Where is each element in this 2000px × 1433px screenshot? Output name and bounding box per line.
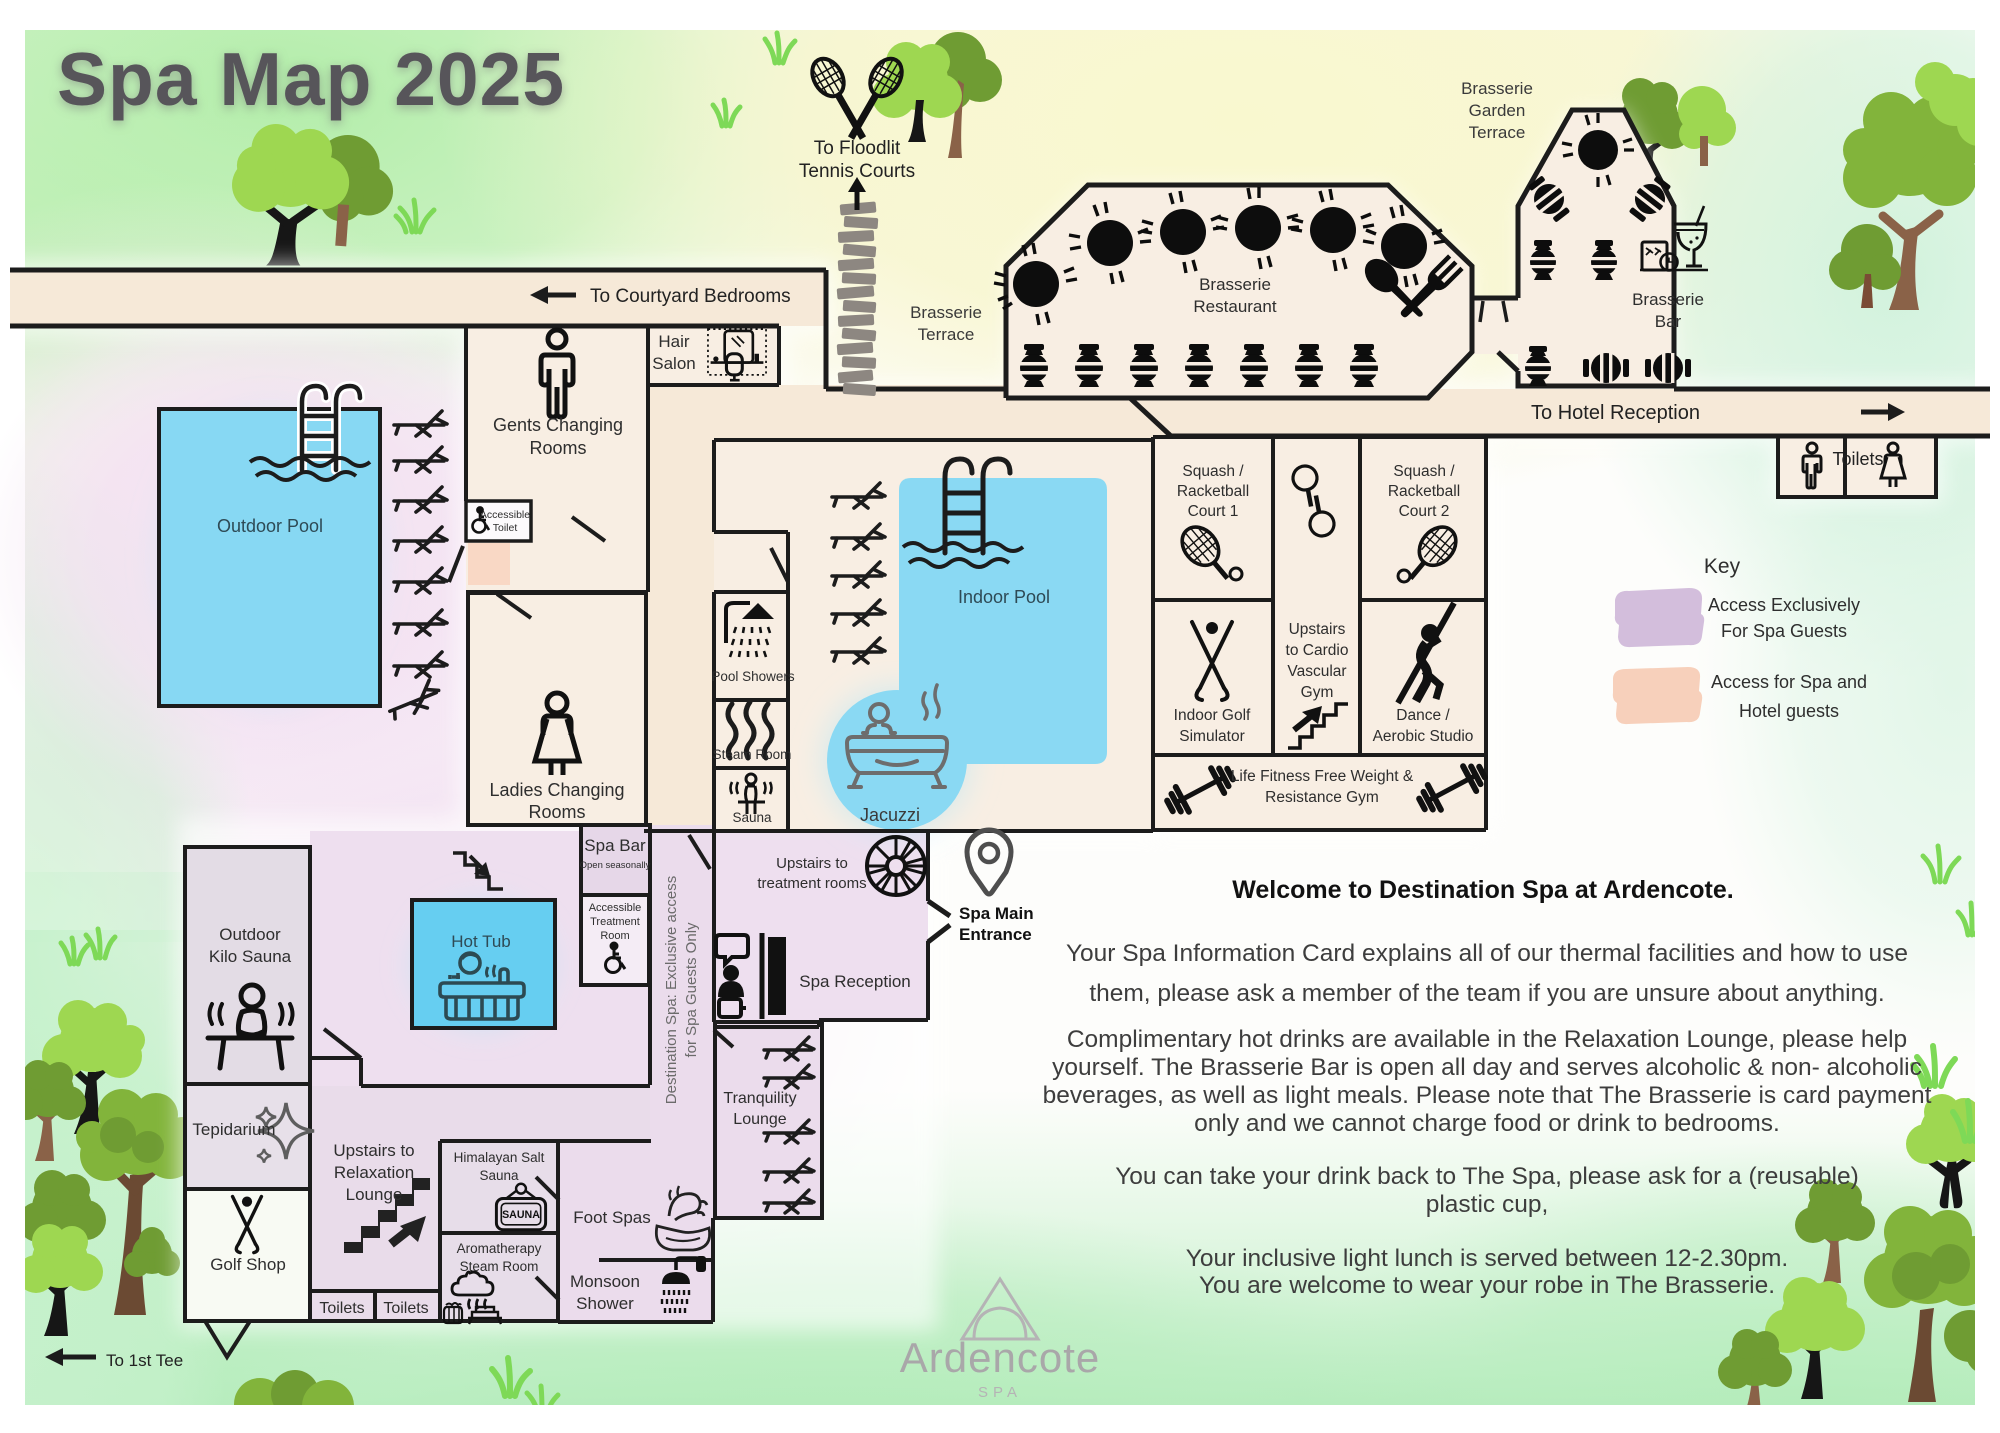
svg-text:Squash /: Squash / bbox=[1393, 463, 1455, 480]
svg-text:only and we cannot charge food: only and we cannot charge food or drink … bbox=[1194, 1110, 1780, 1137]
svg-text:Entrance: Entrance bbox=[959, 925, 1032, 944]
svg-text:Tepidarium: Tepidarium bbox=[192, 1120, 275, 1139]
svg-text:Steam Room: Steam Room bbox=[460, 1259, 539, 1274]
svg-text:beverages, as well as light me: beverages, as well as light meals. Pleas… bbox=[1043, 1082, 1932, 1109]
svg-text:Lounge: Lounge bbox=[733, 1111, 786, 1128]
svg-text:Vascular: Vascular bbox=[1287, 663, 1346, 680]
svg-text:Brasserie: Brasserie bbox=[910, 303, 982, 322]
svg-text:Jacuzzi: Jacuzzi bbox=[860, 805, 920, 825]
svg-text:plastic cup,: plastic cup, bbox=[1426, 1191, 1549, 1218]
svg-text:Your inclusive light lunch is: Your inclusive light lunch is served bet… bbox=[1186, 1245, 1788, 1272]
svg-text:for Spa Guests Only: for Spa Guests Only bbox=[683, 922, 700, 1058]
svg-text:Simulator: Simulator bbox=[1179, 728, 1244, 745]
svg-text:Toilets: Toilets bbox=[383, 1300, 428, 1317]
svg-text:To Hotel Reception: To Hotel Reception bbox=[1531, 402, 1700, 424]
svg-text:Relaxation: Relaxation bbox=[334, 1163, 414, 1182]
svg-text:Kilo Sauna: Kilo Sauna bbox=[209, 947, 292, 966]
svg-text:SAUNA: SAUNA bbox=[502, 1209, 540, 1221]
svg-text:Accessible: Accessible bbox=[589, 902, 642, 914]
svg-text:Hot Tub: Hot Tub bbox=[451, 932, 511, 951]
svg-text:Upstairs: Upstairs bbox=[1289, 621, 1346, 638]
svg-text:Resistance Gym: Resistance Gym bbox=[1265, 789, 1379, 806]
svg-text:Hotel guests: Hotel guests bbox=[1739, 701, 1839, 721]
svg-text:SPA: SPA bbox=[978, 1384, 1022, 1401]
svg-text:Shower: Shower bbox=[576, 1294, 634, 1313]
svg-text:Lounge: Lounge bbox=[346, 1185, 403, 1204]
svg-text:Indoor Pool: Indoor Pool bbox=[958, 587, 1050, 607]
svg-text:Sauna: Sauna bbox=[479, 1168, 519, 1183]
svg-text:Your Spa Information Card expl: Your Spa Information Card explains all o… bbox=[1066, 940, 1908, 967]
svg-text:Upstairs to: Upstairs to bbox=[776, 855, 848, 872]
svg-text:Complimentary hot drinks are a: Complimentary hot drinks are available i… bbox=[1067, 1026, 1907, 1053]
svg-text:Aromatherapy: Aromatherapy bbox=[457, 1241, 542, 1256]
svg-text:Racketball: Racketball bbox=[1177, 483, 1249, 500]
svg-text:Bar: Bar bbox=[1655, 312, 1682, 331]
svg-text:Upstairs to: Upstairs to bbox=[333, 1141, 414, 1160]
svg-text:Outdoor Pool: Outdoor Pool bbox=[217, 516, 323, 536]
svg-text:Spa Bar: Spa Bar bbox=[584, 836, 646, 855]
svg-text:Salon: Salon bbox=[652, 354, 695, 373]
svg-text:Ladies Changing: Ladies Changing bbox=[489, 780, 624, 800]
svg-text:Steam Room: Steam Room bbox=[713, 747, 792, 762]
svg-text:Access Exclusively: Access Exclusively bbox=[1708, 595, 1860, 615]
svg-text:Indoor Golf: Indoor Golf bbox=[1174, 707, 1251, 724]
svg-text:Welcome to Destination Spa at: Welcome to Destination Spa at Ardencote. bbox=[1232, 876, 1733, 904]
svg-text:Toilet: Toilet bbox=[493, 522, 518, 534]
svg-text:Aerobic Studio: Aerobic Studio bbox=[1373, 728, 1474, 745]
svg-text:Destination Spa: Exclusive acc: Destination Spa: Exclusive access bbox=[663, 876, 680, 1104]
svg-text:Brasserie: Brasserie bbox=[1461, 79, 1533, 98]
svg-text:Restaurant: Restaurant bbox=[1193, 297, 1276, 316]
svg-text:Key: Key bbox=[1704, 555, 1741, 578]
svg-text:Spa Map 2025: Spa Map 2025 bbox=[57, 37, 565, 121]
svg-text:Tranquility: Tranquility bbox=[723, 1090, 796, 1107]
svg-text:Room: Room bbox=[600, 930, 629, 942]
svg-text:Outdoor: Outdoor bbox=[219, 925, 281, 944]
svg-text:To Courtyard Bedrooms: To Courtyard Bedrooms bbox=[590, 286, 791, 307]
svg-text:Sauna: Sauna bbox=[732, 810, 772, 825]
svg-text:yourself. The Brasserie Bar is: yourself. The Brasserie Bar is open all … bbox=[1052, 1054, 1922, 1081]
svg-text:Spa Main: Spa Main bbox=[959, 904, 1034, 923]
svg-text:to Cardio: to Cardio bbox=[1286, 642, 1349, 659]
svg-text:Hair: Hair bbox=[658, 332, 690, 351]
svg-text:Ardencote: Ardencote bbox=[900, 1334, 1100, 1381]
svg-text:Court 2: Court 2 bbox=[1399, 503, 1450, 520]
svg-text:You can take your drink back t: You can take your drink back to The Spa,… bbox=[1115, 1163, 1859, 1190]
svg-text:them, please ask a member of t: them, please ask a member of the team if… bbox=[1089, 980, 1884, 1007]
svg-text:Rooms: Rooms bbox=[529, 438, 586, 458]
svg-text:Brasserie: Brasserie bbox=[1199, 275, 1271, 294]
svg-text:Toilets: Toilets bbox=[319, 1300, 364, 1317]
svg-text:Terrace: Terrace bbox=[918, 325, 975, 344]
svg-text:Rooms: Rooms bbox=[528, 802, 585, 822]
svg-text:To 1st Tee: To 1st Tee bbox=[106, 1351, 183, 1370]
svg-text:Brasserie: Brasserie bbox=[1632, 290, 1704, 309]
svg-text:Racketball: Racketball bbox=[1388, 483, 1460, 500]
svg-text:Gents Changing: Gents Changing bbox=[493, 415, 623, 435]
svg-text:Toilets: Toilets bbox=[1832, 449, 1883, 469]
svg-text:Open seasonally: Open seasonally bbox=[580, 860, 651, 871]
svg-text:Treatment: Treatment bbox=[590, 916, 640, 928]
svg-text:You are welcome to wear your r: You are welcome to wear your robe in The… bbox=[1199, 1272, 1775, 1299]
svg-text:Access for Spa and: Access for Spa and bbox=[1711, 672, 1867, 692]
svg-text:Court 1: Court 1 bbox=[1188, 503, 1239, 520]
svg-text:To Floodlit: To Floodlit bbox=[814, 138, 901, 159]
svg-text:Garden: Garden bbox=[1469, 101, 1526, 120]
svg-text:Monsoon: Monsoon bbox=[570, 1272, 640, 1291]
svg-text:For Spa Guests: For Spa Guests bbox=[1721, 621, 1847, 641]
svg-text:treatment rooms: treatment rooms bbox=[757, 875, 866, 892]
svg-text:Spa Reception: Spa Reception bbox=[799, 972, 911, 991]
svg-text:Pool Showers: Pool Showers bbox=[711, 669, 795, 684]
svg-text:Gym: Gym bbox=[1301, 684, 1334, 701]
svg-text:Foot Spas: Foot Spas bbox=[573, 1208, 651, 1227]
svg-text:Golf Shop: Golf Shop bbox=[210, 1255, 286, 1274]
svg-text:Squash /: Squash / bbox=[1182, 463, 1244, 480]
svg-text:Dance /: Dance / bbox=[1396, 707, 1450, 724]
svg-text:Himalayan Salt: Himalayan Salt bbox=[454, 1150, 545, 1165]
svg-text:Terrace: Terrace bbox=[1469, 123, 1526, 142]
svg-text:Tennis Courts: Tennis Courts bbox=[799, 161, 915, 182]
svg-text:Life Fitness Free Weight &: Life Fitness Free Weight & bbox=[1231, 768, 1414, 785]
svg-text:Accessible: Accessible bbox=[480, 509, 530, 521]
